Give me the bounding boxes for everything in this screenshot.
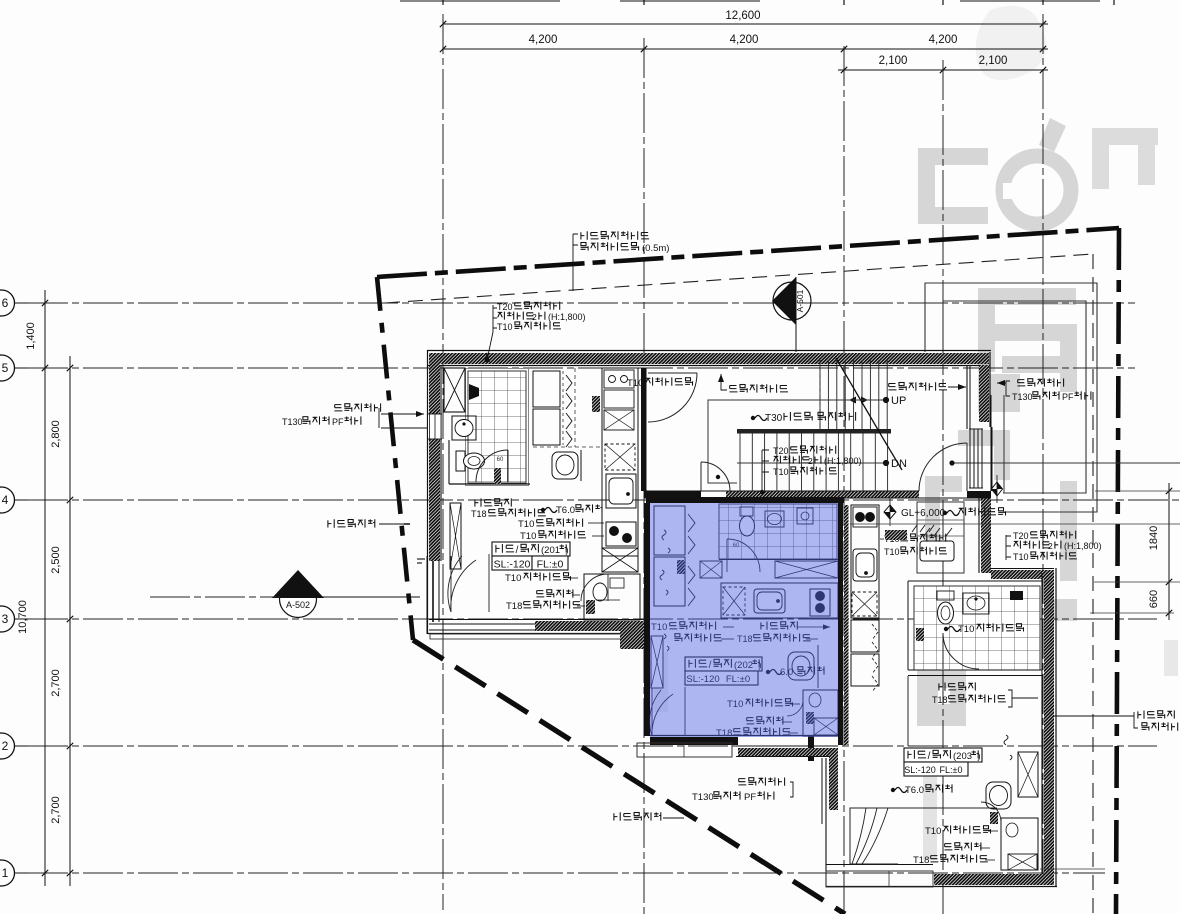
svg-text:T18: T18 — [913, 855, 929, 866]
svg-text:T10: T10 — [497, 322, 513, 332]
svg-text:T18: T18 — [506, 601, 522, 612]
svg-text:): ) — [565, 545, 568, 556]
svg-text:DN: DN — [891, 458, 907, 470]
svg-text:2: 2 — [2, 739, 9, 753]
svg-text:(0.5m): (0.5m) — [642, 243, 669, 254]
svg-text:T130: T130 — [1012, 392, 1033, 402]
svg-text:1,400: 1,400 — [25, 322, 37, 350]
svg-text:T10: T10 — [627, 378, 643, 389]
svg-text:2,700: 2,700 — [50, 796, 62, 824]
svg-text:/: / — [516, 545, 519, 556]
svg-text:(H:1,800): (H:1,800) — [824, 456, 862, 466]
svg-text:T6.0: T6.0 — [556, 505, 575, 516]
svg-text:GL+6,000: GL+6,000 — [901, 508, 946, 519]
svg-text:2: 2 — [1048, 541, 1053, 551]
svg-text:T10: T10 — [925, 826, 941, 837]
svg-text:T130: T130 — [282, 417, 303, 427]
svg-text:A-502: A-502 — [286, 600, 310, 610]
svg-text:2,100: 2,100 — [979, 55, 1008, 67]
svg-text:2,800: 2,800 — [50, 420, 62, 448]
svg-text:4,200: 4,200 — [529, 34, 558, 46]
svg-text:2,700: 2,700 — [50, 669, 62, 697]
svg-text:2: 2 — [808, 456, 813, 466]
svg-text:T130: T130 — [692, 792, 714, 803]
svg-text:12,600: 12,600 — [725, 10, 760, 22]
svg-text:10,700: 10,700 — [17, 600, 29, 634]
svg-text:FL:±0: FL:±0 — [537, 559, 564, 571]
svg-text:3: 3 — [2, 612, 9, 626]
svg-text:PF: PF — [332, 417, 344, 427]
svg-text:T10: T10 — [1013, 552, 1029, 562]
svg-text:T18: T18 — [932, 695, 948, 705]
svg-text:660: 660 — [1148, 590, 1160, 608]
svg-text:A-501: A-501 — [795, 289, 805, 312]
svg-text:2: 2 — [532, 312, 537, 322]
svg-text:T6.0: T6.0 — [905, 785, 924, 796]
svg-text:T20: T20 — [497, 302, 513, 312]
svg-text:1: 1 — [2, 866, 9, 880]
svg-text:T10: T10 — [773, 467, 789, 477]
svg-text:/: / — [928, 751, 931, 762]
svg-text:T10: T10 — [958, 624, 974, 635]
svg-text:PF: PF — [1062, 392, 1074, 402]
svg-text:T10: T10 — [505, 573, 521, 584]
svg-text:UP: UP — [891, 395, 906, 407]
svg-text:SL:-120: SL:-120 — [494, 559, 531, 571]
svg-text:(203: (203 — [953, 751, 972, 762]
svg-text:T18: T18 — [471, 509, 487, 519]
svg-text:6: 6 — [2, 296, 9, 310]
svg-text:T20: T20 — [773, 446, 789, 456]
svg-text:1840: 1840 — [1148, 526, 1160, 550]
svg-text:4,200: 4,200 — [730, 34, 759, 46]
svg-text:T10: T10 — [884, 547, 900, 557]
svg-text:PF: PF — [744, 792, 756, 803]
svg-text:4: 4 — [2, 493, 9, 507]
svg-text:FL:±0: FL:±0 — [940, 765, 963, 775]
svg-text:60: 60 — [497, 457, 504, 463]
svg-text:T30: T30 — [765, 413, 783, 424]
svg-text:(201: (201 — [541, 545, 560, 556]
svg-text:): ) — [977, 751, 980, 762]
svg-text:T20: T20 — [1013, 531, 1029, 541]
svg-text:T10: T10 — [520, 531, 536, 542]
svg-text:T10: T10 — [518, 519, 534, 530]
svg-text:2,500: 2,500 — [50, 546, 62, 574]
svg-text:5: 5 — [2, 361, 9, 375]
svg-text:2,100: 2,100 — [879, 55, 908, 67]
svg-text:4,200: 4,200 — [929, 34, 958, 46]
svg-text:(H:1,800): (H:1,800) — [548, 312, 586, 322]
svg-text:SL:-120: SL:-120 — [904, 765, 936, 775]
svg-text:(H:1,800): (H:1,800) — [1064, 541, 1102, 551]
